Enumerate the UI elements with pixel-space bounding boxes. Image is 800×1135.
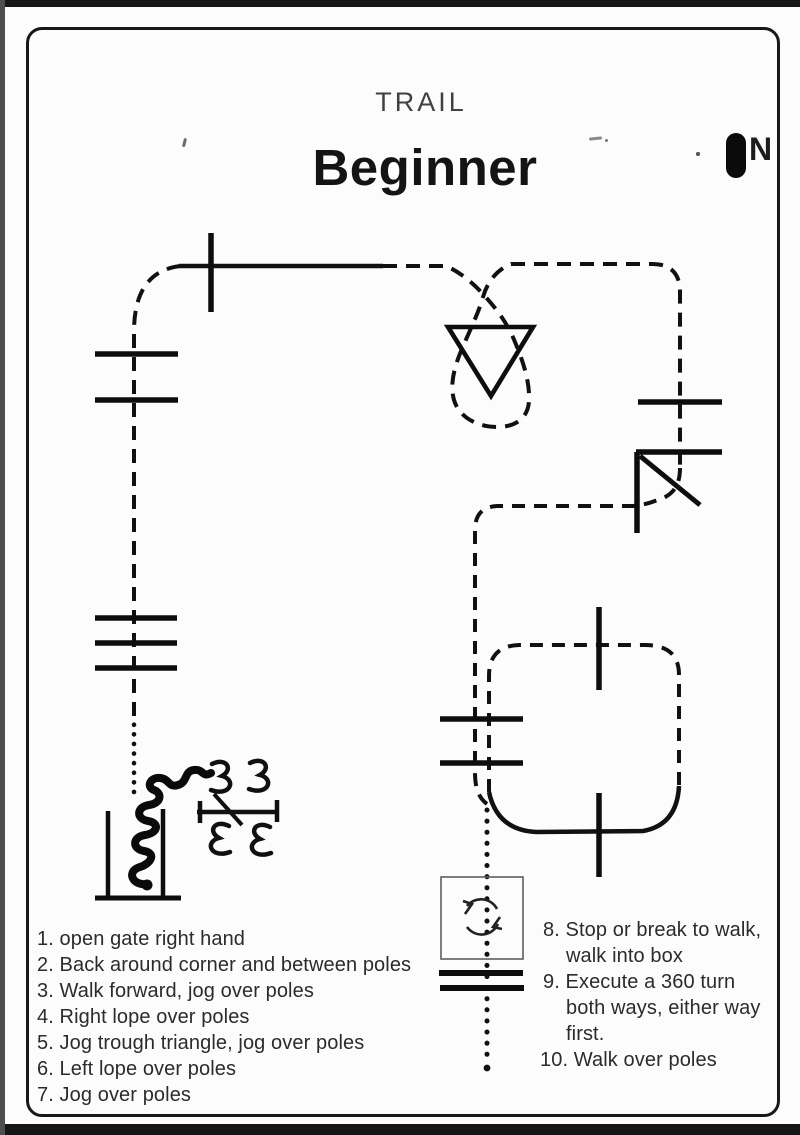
pole-bottom-pair	[439, 973, 524, 988]
instruction-item: 10. Walk over poles	[540, 1047, 761, 1073]
rotate-360-icon	[463, 899, 502, 934]
instruction-item: 8. Stop or break to walk,	[543, 917, 761, 943]
instructions-right: 8. Stop or break to walk, walk into box …	[543, 917, 761, 1073]
pole-center-pair	[440, 719, 523, 763]
path-end-dot	[484, 1065, 491, 1072]
instruction-item: 9. Execute a 360 turn	[543, 969, 761, 995]
curl-glyphs	[211, 761, 271, 855]
corner-diagonal-pole	[640, 456, 700, 505]
instruction-item: 7. Jog over poles	[37, 1082, 411, 1108]
path-loop-solid	[489, 786, 679, 832]
instructions-left: 1. open gate right hand 2. Back around c…	[37, 926, 411, 1108]
instruction-item: 3. Walk forward, jog over poles	[37, 978, 411, 1004]
obstacle-poles	[95, 233, 722, 988]
instruction-item: 1. open gate right hand	[37, 926, 411, 952]
instruction-item-wrap: first.	[566, 1021, 761, 1047]
pole-left-pair	[95, 354, 178, 400]
page-frame: TRAIL Beginner N	[0, 0, 800, 1135]
path-middle-west	[475, 468, 680, 804]
path-triangle-loop	[383, 264, 680, 468]
instruction-item: 6. Left lope over poles	[37, 1056, 411, 1082]
instruction-item: 2. Back around corner and between poles	[37, 952, 411, 978]
gate-squiggle-icon	[132, 770, 211, 891]
instruction-item-wrap: walk into box	[566, 943, 761, 969]
instruction-item: 4. Right lope over poles	[37, 1004, 411, 1030]
instruction-item-wrap: both ways, either way	[566, 995, 761, 1021]
instruction-item: 5. Jog trough triangle, jog over poles	[37, 1030, 411, 1056]
marker-diagonal	[214, 794, 242, 825]
path-left-dashed	[134, 266, 181, 716]
turn-box	[441, 877, 523, 959]
paper: TRAIL Beginner N	[5, 7, 800, 1124]
triangle-obstacle	[448, 327, 533, 396]
